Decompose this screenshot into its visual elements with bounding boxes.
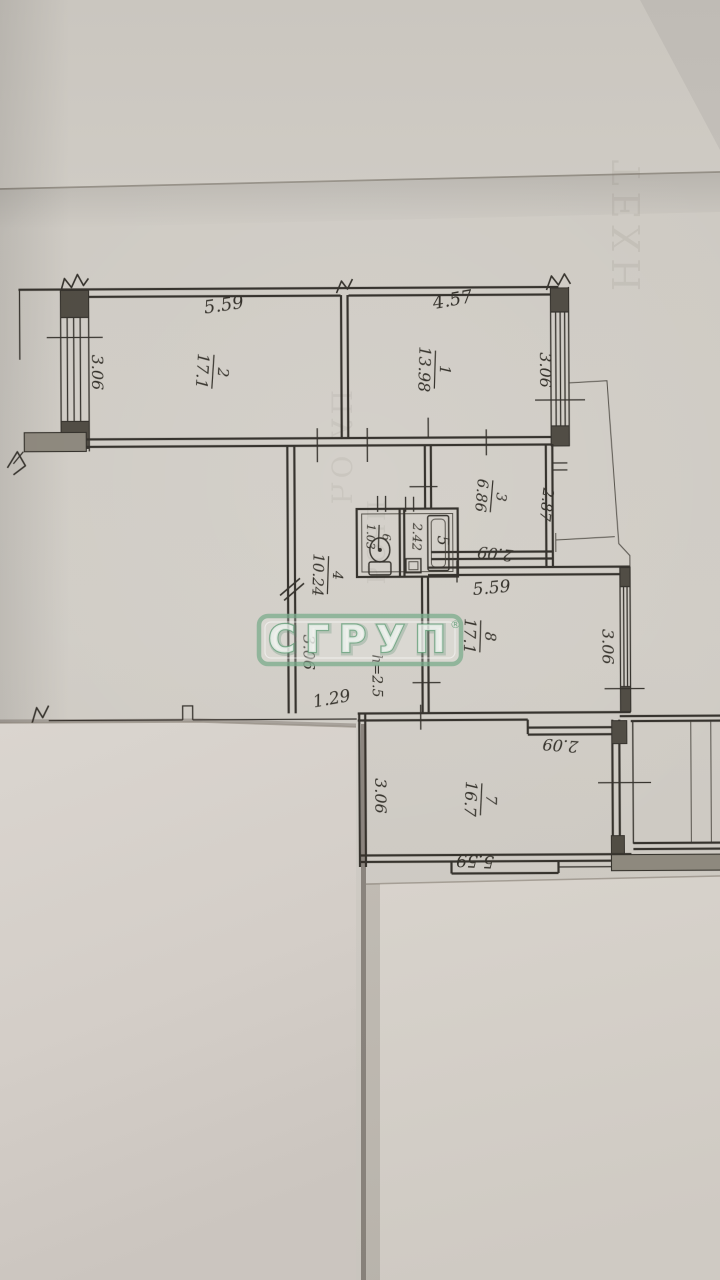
room-2-area: 17.1	[192, 353, 213, 390]
room-1-number: 1	[436, 365, 454, 375]
room-6-area: 1.03	[363, 524, 378, 550]
bottom-exterior-band	[611, 854, 720, 871]
bottom-right-paper-sheet	[366, 876, 720, 1280]
dim-room7-left: 3.06	[371, 778, 390, 814]
room-8-number: 8	[481, 632, 499, 642]
dim-bath-width: 2.42	[409, 522, 425, 551]
room-5-number: 5	[434, 535, 453, 546]
dim-room1-right: 3.06	[536, 352, 555, 388]
dim-room7-bottom: 5.59	[456, 850, 495, 872]
photographed-floor-plan-document: ТЕХН ПУ ОЧ ПРОЧ	[0, 0, 720, 1280]
room-1-area: 13.98	[414, 346, 434, 392]
watermark-text: СГРУП	[268, 618, 455, 661]
watermark: СГРУП СГРУП ®	[259, 616, 461, 664]
room-6-number: 6	[380, 533, 393, 540]
room-3-area: 6.86	[471, 478, 492, 513]
dim-room8-right: 3.06	[598, 629, 617, 665]
room-4-number: 4	[329, 570, 345, 580]
dim-room8-top: 5.59	[472, 577, 512, 600]
room-7-area: 16.7	[460, 781, 481, 818]
room-2-number: 2	[214, 366, 233, 378]
room-4-area: 10.24	[308, 553, 327, 596]
bottom-left-paper-sheet	[0, 720, 356, 1280]
dim-room2-left: 3.06	[88, 355, 107, 391]
dim-vestibule-width: 2.09	[542, 735, 580, 757]
bleed-text-1: ТЕХН	[605, 160, 649, 297]
room-7-number: 7	[482, 795, 500, 806]
registered-mark-icon: ®	[450, 618, 461, 631]
paper-gap-shadow	[361, 724, 366, 1280]
room-3-number: 3	[492, 492, 509, 502]
